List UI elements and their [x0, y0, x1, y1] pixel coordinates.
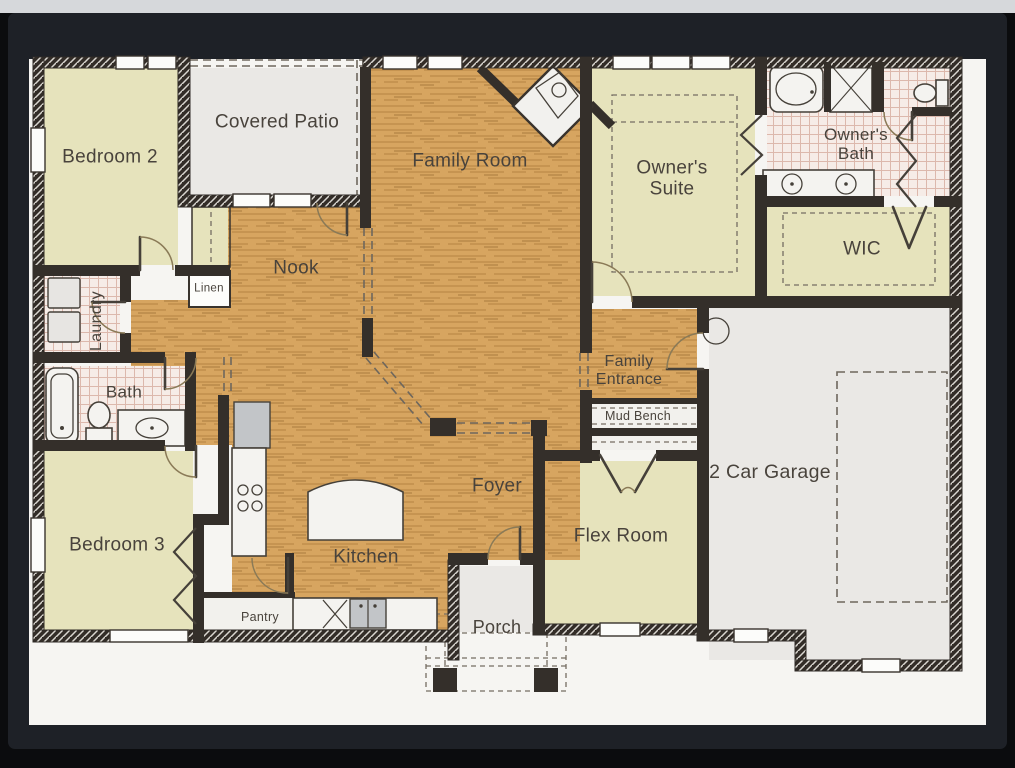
washer-icon [48, 278, 80, 308]
floor-plan-photo: Bedroom 2 Covered Patio Family Room Owne… [0, 0, 1015, 768]
double-vanity-icon [763, 170, 874, 198]
room-label-bedroom-2: Bedroom 2 [62, 146, 158, 167]
room-label-pantry: Pantry [241, 610, 279, 624]
shower-icon [830, 64, 872, 112]
room-label-foyer: Foyer [472, 475, 522, 496]
room-label-owners-suite: Owner's Suite [622, 158, 722, 201]
room-label-owners-bath: Owner's Bath [811, 125, 901, 163]
room-label-covered-patio: Covered Patio [215, 111, 339, 132]
bathtub-icon [770, 66, 823, 112]
room-label-laundry: Laundry [88, 291, 106, 351]
refrigerator-icon [234, 402, 270, 448]
room-label-porch: Porch [473, 617, 522, 637]
bathtub-icon-2 [46, 368, 78, 444]
flex-closet-floor [592, 436, 697, 450]
porch-column-2 [534, 668, 558, 692]
room-label-bath: Bath [106, 382, 142, 401]
kitchen-sink-icon [350, 599, 386, 628]
room-label-family-room: Family Room [412, 150, 527, 171]
toilet-icon-2 [86, 402, 112, 442]
room-label-wic: WIC [843, 238, 881, 259]
room-label-family-entrance: Family Entrance [582, 353, 677, 389]
room-label-bedroom-3: Bedroom 3 [69, 534, 165, 555]
room-label-kitchen: Kitchen [333, 546, 398, 567]
porch-column [433, 668, 457, 692]
dryer-icon [48, 312, 80, 342]
room-label-linen: Linen [194, 283, 224, 296]
room-label-nook: Nook [273, 257, 319, 278]
kitchen-island [308, 480, 403, 540]
room-label-mud-bench: Mud Bench [605, 409, 671, 423]
room-label-flex-room: Flex Room [574, 525, 669, 546]
room-label-2-car-garage: 2 Car Garage [709, 462, 831, 484]
floor-plan-drawing [0, 0, 1015, 768]
